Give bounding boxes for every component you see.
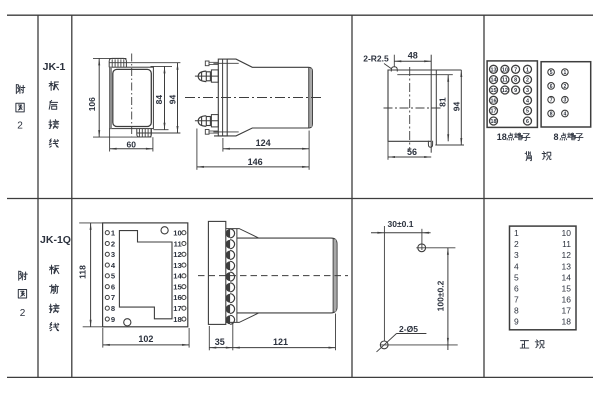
svg-text:9: 9 (514, 88, 517, 94)
svg-text:94: 94 (168, 95, 178, 105)
svg-text:6: 6 (526, 119, 529, 125)
svg-text:2: 2 (514, 239, 519, 249)
svg-text:8: 8 (550, 111, 553, 117)
svg-text:81: 81 (438, 97, 448, 107)
svg-text:18: 18 (562, 316, 572, 326)
svg-text:18: 18 (497, 132, 507, 142)
svg-text:13: 13 (491, 67, 497, 73)
svg-text:106: 106 (87, 97, 97, 111)
svg-text:4: 4 (526, 98, 529, 104)
svg-text:14: 14 (562, 272, 572, 282)
svg-text:56: 56 (407, 147, 417, 157)
svg-text:3: 3 (514, 250, 519, 260)
svg-text:7: 7 (550, 98, 553, 104)
svg-text:11: 11 (502, 78, 508, 84)
svg-text:5: 5 (514, 272, 519, 282)
svg-text:JK-1: JK-1 (43, 61, 66, 73)
svg-text:11: 11 (174, 239, 183, 248)
svg-text:15: 15 (562, 283, 572, 293)
svg-text:84: 84 (154, 95, 164, 105)
svg-text:16: 16 (173, 293, 181, 302)
svg-text:3: 3 (564, 98, 567, 104)
svg-text:1: 1 (514, 228, 519, 238)
svg-text:17: 17 (173, 304, 181, 313)
svg-text:2: 2 (111, 239, 115, 248)
svg-text:3: 3 (526, 88, 529, 94)
svg-text:14: 14 (173, 272, 182, 281)
svg-text:16: 16 (491, 98, 497, 104)
svg-text:7: 7 (514, 294, 519, 304)
svg-text:14: 14 (491, 78, 497, 84)
svg-text:3: 3 (111, 250, 115, 259)
svg-text:2: 2 (526, 78, 529, 84)
svg-text:60: 60 (127, 140, 137, 150)
svg-text:16: 16 (562, 294, 572, 304)
svg-text:2-Ø5: 2-Ø5 (399, 324, 418, 334)
svg-text:100±0.2: 100±0.2 (436, 280, 446, 311)
svg-text:18: 18 (173, 315, 181, 324)
svg-text:18: 18 (491, 119, 497, 125)
svg-text:13: 13 (173, 261, 181, 270)
svg-text:8: 8 (554, 132, 559, 142)
svg-text:6: 6 (514, 283, 519, 293)
svg-text:121: 121 (273, 337, 288, 347)
svg-text:5: 5 (550, 70, 553, 76)
svg-text:146: 146 (248, 157, 263, 167)
svg-text:12: 12 (502, 88, 508, 94)
svg-text:9: 9 (111, 315, 115, 324)
svg-text:17: 17 (491, 109, 497, 115)
svg-text:102: 102 (138, 334, 153, 344)
svg-text:7: 7 (514, 67, 517, 73)
svg-text:15: 15 (491, 88, 497, 94)
svg-text:2: 2 (564, 84, 567, 90)
svg-text:15: 15 (173, 282, 182, 291)
svg-text:17: 17 (562, 305, 572, 315)
svg-text:2-R2.5: 2-R2.5 (363, 54, 389, 64)
svg-text:1: 1 (526, 67, 529, 73)
svg-text:11: 11 (562, 239, 571, 249)
svg-text:30±0.1: 30±0.1 (388, 219, 414, 229)
svg-text:6: 6 (111, 282, 115, 291)
svg-text:10: 10 (562, 228, 572, 238)
svg-text:12: 12 (173, 250, 181, 259)
svg-text:8: 8 (111, 304, 115, 313)
svg-text:94: 94 (452, 102, 462, 112)
svg-text:2: 2 (20, 308, 26, 319)
svg-text:8: 8 (514, 78, 517, 84)
svg-text:10: 10 (173, 229, 181, 238)
svg-text:35: 35 (215, 337, 225, 347)
svg-text:7: 7 (111, 293, 115, 302)
svg-text:13: 13 (562, 261, 572, 271)
svg-text:1: 1 (564, 70, 567, 76)
svg-text:118: 118 (77, 265, 87, 279)
svg-text:4: 4 (514, 261, 519, 271)
svg-text:5: 5 (526, 109, 529, 115)
svg-text:2: 2 (17, 121, 23, 132)
svg-text:6: 6 (550, 84, 553, 90)
svg-text:4: 4 (564, 111, 567, 117)
svg-text:48: 48 (408, 51, 418, 61)
svg-text:JK-1Q: JK-1Q (40, 234, 71, 246)
svg-text:10: 10 (502, 67, 508, 73)
svg-text:124: 124 (256, 138, 271, 148)
svg-text:9: 9 (514, 316, 519, 326)
svg-text:8: 8 (514, 305, 519, 315)
svg-text:12: 12 (562, 250, 572, 260)
